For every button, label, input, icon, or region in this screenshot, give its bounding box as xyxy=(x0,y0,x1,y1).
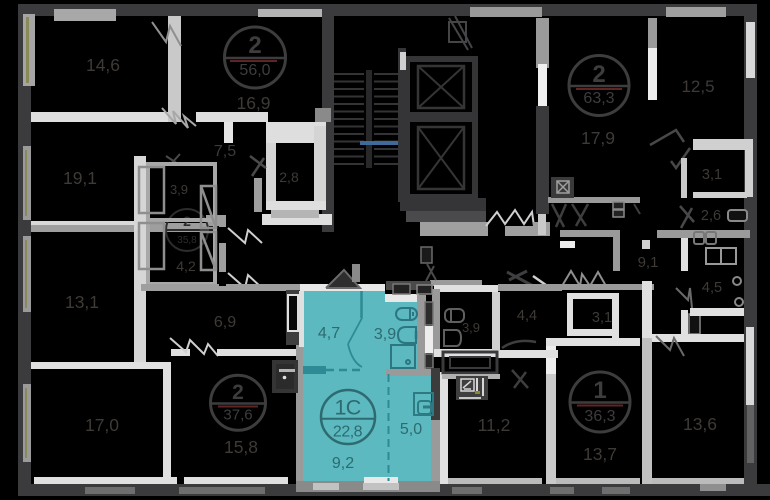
svg-text:36,3: 36,3 xyxy=(584,408,615,425)
svg-text:7,5: 7,5 xyxy=(214,143,236,160)
svg-text:14,6: 14,6 xyxy=(86,55,120,75)
svg-text:11,2: 11,2 xyxy=(478,415,511,435)
svg-text:2,8: 2,8 xyxy=(279,169,299,185)
svg-text:63,3: 63,3 xyxy=(583,90,614,107)
svg-text:19,1: 19,1 xyxy=(63,168,97,188)
svg-text:9,1: 9,1 xyxy=(638,254,659,271)
svg-text:2: 2 xyxy=(232,381,244,404)
svg-text:3,9: 3,9 xyxy=(374,326,396,343)
svg-text:17,9: 17,9 xyxy=(581,128,615,148)
svg-text:22,8: 22,8 xyxy=(333,424,363,441)
svg-text:9,2: 9,2 xyxy=(332,455,354,472)
svg-text:4,4: 4,4 xyxy=(517,308,537,324)
svg-text:3,9: 3,9 xyxy=(170,182,188,197)
svg-text:15,8: 15,8 xyxy=(224,437,258,457)
svg-text:17,0: 17,0 xyxy=(85,415,119,435)
svg-text:5,0: 5,0 xyxy=(400,421,422,438)
svg-text:6,9: 6,9 xyxy=(214,314,236,331)
svg-text:3,9: 3,9 xyxy=(462,320,480,335)
svg-text:4,2: 4,2 xyxy=(176,258,196,274)
svg-text:13,7: 13,7 xyxy=(583,444,617,464)
svg-text:13,6: 13,6 xyxy=(683,414,717,434)
svg-text:35,8: 35,8 xyxy=(177,235,197,246)
svg-text:56,0: 56,0 xyxy=(239,62,270,79)
svg-text:3,1: 3,1 xyxy=(702,167,722,183)
svg-text:3,1: 3,1 xyxy=(592,310,612,326)
svg-text:1C: 1C xyxy=(335,396,361,420)
svg-text:2: 2 xyxy=(592,61,605,88)
svg-text:2: 2 xyxy=(248,32,261,59)
svg-text:1: 1 xyxy=(593,377,606,404)
svg-text:4,5: 4,5 xyxy=(702,280,722,296)
svg-text:37,6: 37,6 xyxy=(223,407,252,424)
svg-text:12,5: 12,5 xyxy=(681,77,714,96)
svg-text:16,9: 16,9 xyxy=(236,93,270,113)
svg-text:4,7: 4,7 xyxy=(318,325,340,342)
svg-text:2,6: 2,6 xyxy=(701,208,721,224)
svg-text:13,1: 13,1 xyxy=(65,292,99,312)
